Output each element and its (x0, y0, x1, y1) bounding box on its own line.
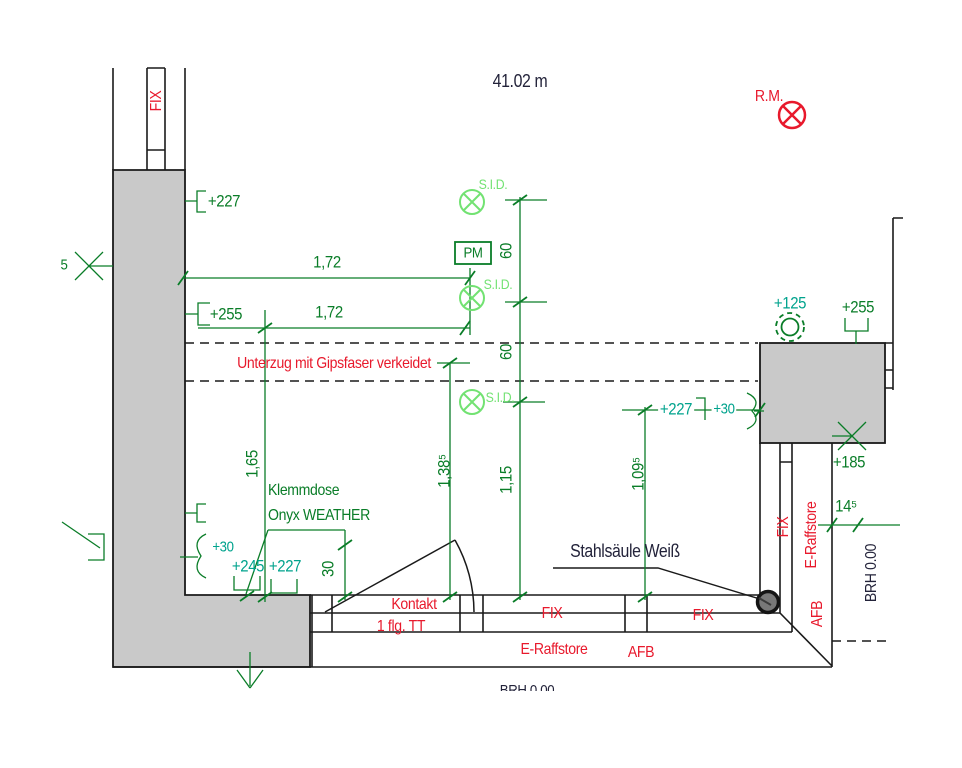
dim-145-label: 14⁵ (835, 498, 857, 515)
e-raffstore-bottom-label: E-Raffstore (520, 642, 587, 658)
unterzug-note-label: Unterzug mit Gipsfaser verkeidet (237, 356, 431, 372)
level-227-mid-label: +227 (658, 401, 694, 418)
door-type-note-label: 1 flg. TT (377, 619, 425, 635)
dim-109-label: 1,09⁵ (630, 457, 647, 491)
level-30-mid-label: +30 (712, 402, 737, 417)
level-125-label: +125 (774, 295, 806, 312)
dim-115-label: 1,15 (498, 466, 515, 494)
brh-bottom-clipped-label: BRH 0.00 (500, 683, 554, 691)
labels-layer: 41.02 mR.M.S.I.D.S.I.D.S.I.D.PM+2271,72+… (0, 0, 962, 768)
fix-bottom-right-label: FIX (693, 608, 714, 624)
afb-bottom-label: AFB (628, 645, 654, 661)
level-30-left-label: +30 (212, 540, 233, 555)
dim-30-label: 30 (320, 561, 337, 577)
stahlsaeule-note-label: Stahlsäule Weiß (570, 542, 680, 560)
level-255-right-label: +255 (842, 299, 874, 316)
edge-glyph-label: 5 (61, 258, 68, 273)
pm-box-label-label: PM (463, 246, 482, 261)
sid-note-1-label: S.I.D. (479, 177, 508, 191)
fix-right-label: FIX (776, 517, 792, 538)
dim-172-lower-label: 1,72 (315, 304, 343, 321)
dim-60-upper-label: 60 (498, 243, 515, 259)
brh-right-label: BRH 0.00 (864, 544, 880, 602)
level-185-label: +185 (833, 454, 865, 471)
dim-165-label: 1,65 (244, 450, 261, 478)
dim-138-label: 1,38⁵ (436, 454, 453, 488)
fix-top-left-label: FIX (149, 91, 165, 112)
e-raffstore-right-label: E-Raffstore (804, 501, 820, 568)
scale-note-label: 41.02 m (493, 72, 548, 90)
level-227-top-left-label: +227 (208, 193, 240, 210)
sid-note-3-label: S.I.D. (486, 390, 515, 404)
rm-note-label: R.M. (755, 89, 783, 105)
fix-bottom-left-label: FIX (542, 606, 563, 622)
level-227-bottom-label: +227 (269, 558, 301, 575)
level-255-left-label: +255 (210, 306, 242, 323)
dim-172-upper-label: 1,72 (313, 254, 341, 271)
klemmdose-note-line1-label: Klemmdose (268, 483, 339, 499)
drawing-canvas: 41.02 mR.M.S.I.D.S.I.D.S.I.D.PM+2271,72+… (0, 0, 962, 768)
sid-note-2-label: S.I.D. (484, 277, 513, 291)
klemmdose-note-line2-label: Onyx WEATHER (268, 508, 370, 524)
kontakt-note-label: Kontakt (391, 597, 436, 613)
afb-right-label: AFB (810, 601, 826, 627)
dim-60-lower-label: 60 (498, 344, 515, 360)
level-245-bottom-label: +245 (232, 558, 264, 575)
